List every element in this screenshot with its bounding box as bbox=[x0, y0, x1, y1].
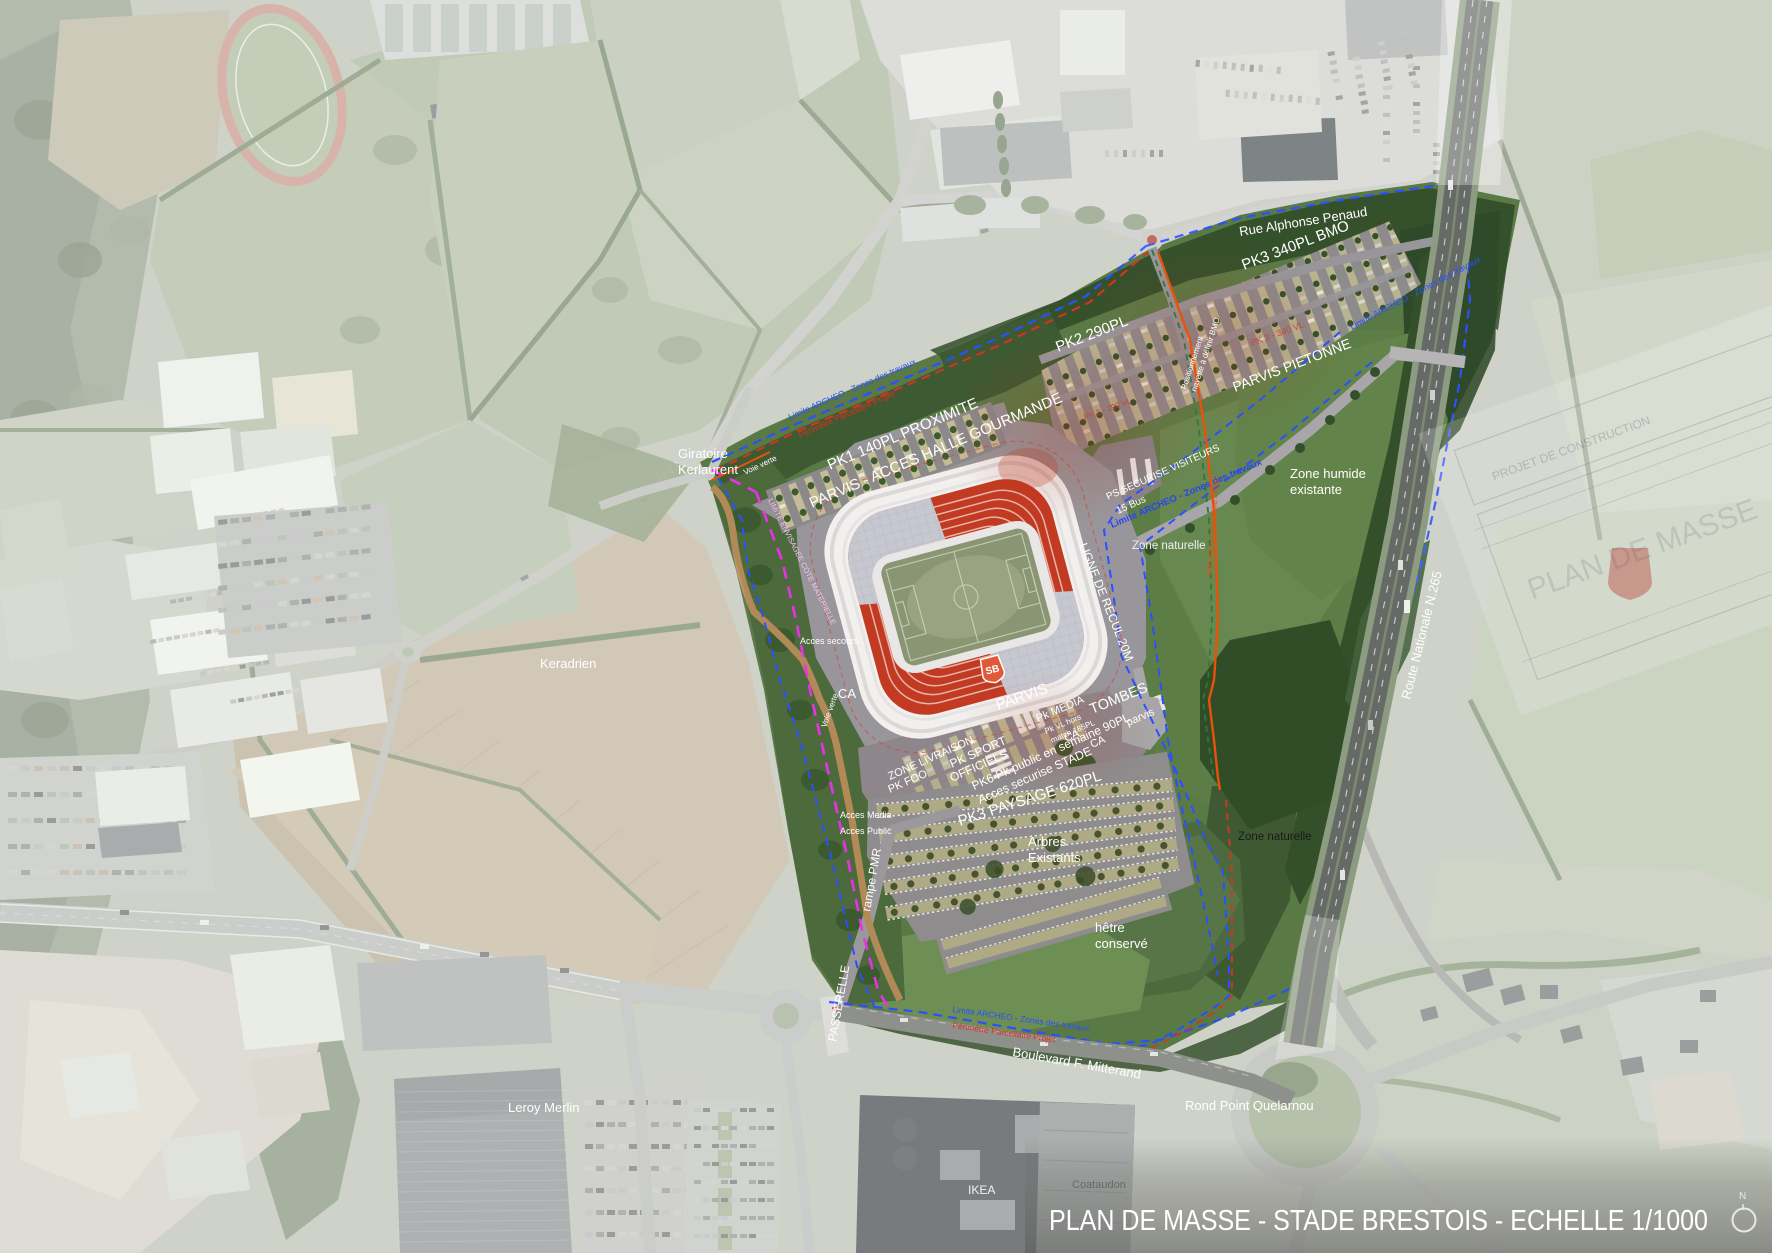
svg-text:existante: existante bbox=[1290, 482, 1342, 497]
svg-text:IKEA: IKEA bbox=[968, 1183, 995, 1197]
svg-text:Keradrien: Keradrien bbox=[540, 656, 596, 671]
svg-text:Zone humide: Zone humide bbox=[1290, 466, 1366, 481]
svg-text:CA: CA bbox=[838, 686, 856, 701]
svg-text:Kerlaurent: Kerlaurent bbox=[678, 462, 738, 477]
svg-text:conservé: conservé bbox=[1095, 936, 1148, 951]
svg-text:Zone naturelle: Zone naturelle bbox=[1132, 540, 1206, 552]
svg-text:PLAN DE MASSE - STADE BRESTOIS: PLAN DE MASSE - STADE BRESTOIS - ECHELLE… bbox=[1049, 1205, 1708, 1237]
svg-text:Giratoire: Giratoire bbox=[678, 446, 728, 461]
svg-text:Acces secours: Acces secours bbox=[800, 636, 859, 646]
svg-text:Existants: Existants bbox=[1028, 850, 1081, 865]
svg-text:Acces Public: Acces Public bbox=[840, 826, 892, 836]
svg-text:Acces Media: Acces Media bbox=[840, 810, 892, 820]
svg-text:N: N bbox=[1739, 1191, 1746, 1202]
svg-text:Leroy Merlin: Leroy Merlin bbox=[508, 1100, 580, 1115]
svg-text:Zone naturelle: Zone naturelle bbox=[1238, 831, 1312, 843]
svg-text:Arbres: Arbres bbox=[1028, 834, 1067, 849]
svg-text:hêtre: hêtre bbox=[1095, 920, 1125, 935]
svg-text:Rond Point Quelarnou: Rond Point Quelarnou bbox=[1185, 1098, 1314, 1113]
